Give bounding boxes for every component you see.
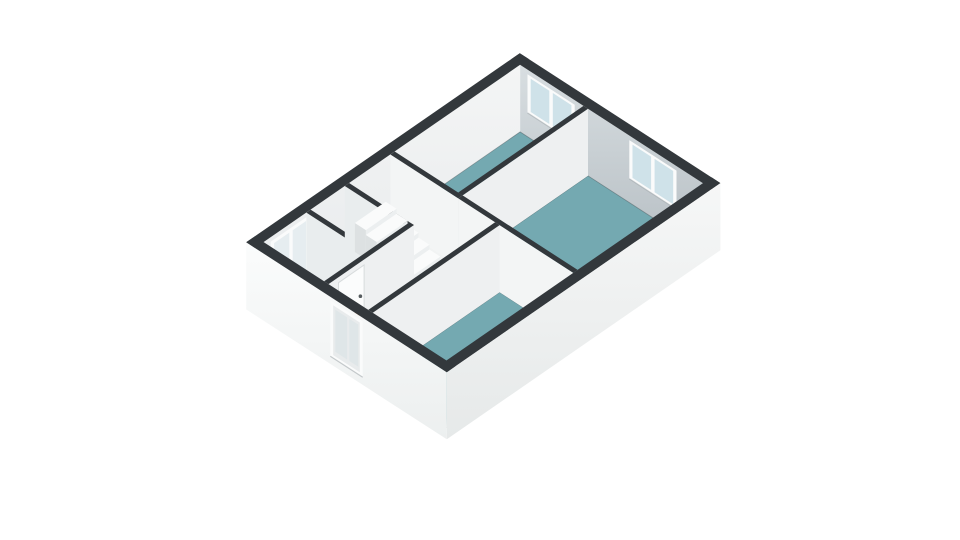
floorplan-3d-render bbox=[0, 0, 960, 540]
floorplan-canvas bbox=[0, 0, 960, 540]
